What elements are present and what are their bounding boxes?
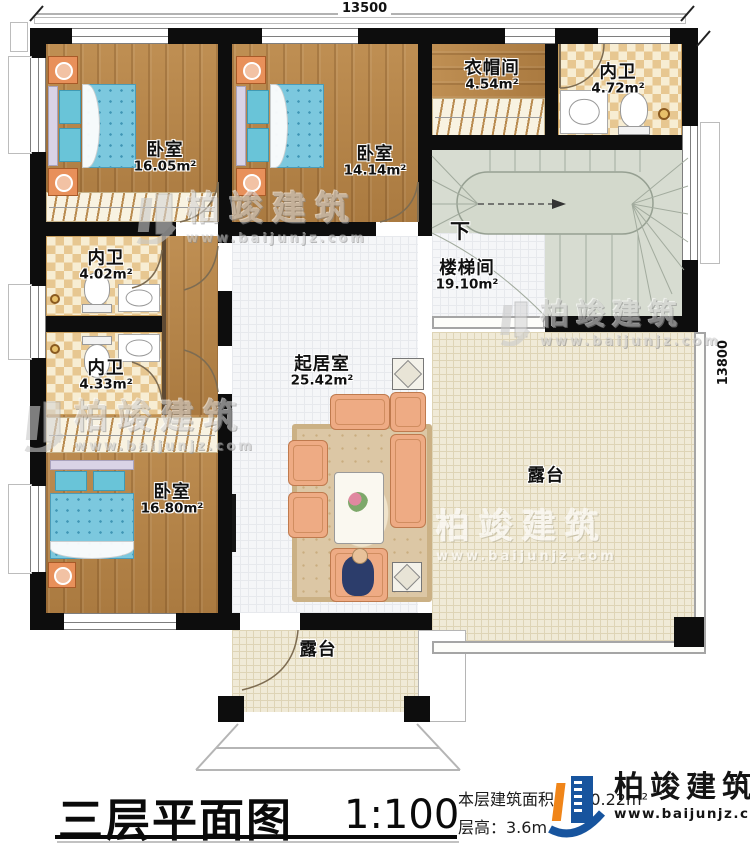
flower-decor [348, 492, 368, 512]
bed-pillow [247, 90, 269, 124]
cloakroom-wardrobe [432, 98, 545, 136]
room-label-bath-left-upper: 内卫 4.02m² [79, 249, 132, 282]
sofa-corner [390, 392, 426, 432]
window [505, 28, 555, 44]
room-area: 4.54m² [464, 78, 520, 93]
drawing-scale: 1:100 [344, 792, 459, 838]
toilet [620, 92, 648, 128]
window [30, 286, 46, 358]
room-label-bath-top-right: 内卫 4.72m² [591, 63, 644, 96]
floor-height-note: 层高：3.6m [458, 814, 547, 838]
wall-bath-corridor [162, 236, 166, 415]
room-name: 内卫 [79, 359, 132, 377]
room-label-living-room: 起居室 25.42m² [291, 355, 354, 388]
wall-stair-bottom [545, 316, 688, 332]
person-head [352, 548, 368, 564]
dimension-top: 13500 [338, 1, 391, 16]
window-sill [700, 122, 720, 264]
corner-post [674, 617, 704, 647]
door-opening [218, 346, 232, 394]
room-name: 楼梯间 [436, 259, 499, 277]
room-name: 露台 [528, 467, 565, 485]
bedroom1-wardrobe [46, 192, 218, 222]
room-area: 4.33m² [79, 378, 132, 393]
room-name: 内卫 [79, 249, 132, 267]
wall-cloak-bottom [432, 135, 688, 150]
nightstand [236, 56, 266, 84]
armchair [288, 440, 328, 486]
door-opening [218, 243, 232, 291]
room-label-bedroom-top-mid: 卧室 14.14m² [344, 145, 407, 178]
room-name: 卧室 [141, 483, 204, 501]
side-table [392, 562, 422, 592]
room-area: 25.42m² [291, 374, 354, 389]
room-label-bath-left-lower: 内卫 4.33m² [79, 359, 132, 392]
wall-right-upper [682, 28, 698, 128]
wall-living-bottom [300, 613, 432, 630]
room-area: 19.10m² [436, 278, 499, 293]
bed-pillow [55, 471, 87, 491]
room-name: 内卫 [591, 63, 644, 81]
window [30, 58, 46, 152]
brand-logo: 柏竣建筑 www.baijunjz.com [546, 771, 750, 839]
title-underline-shadow [57, 841, 459, 843]
window [64, 613, 176, 630]
wall-bedrooms-bottom [30, 222, 432, 236]
floor-terrace-right [432, 332, 694, 643]
bed-headboard [48, 86, 58, 166]
floor-drain [658, 108, 670, 120]
bed-headboard [50, 460, 134, 470]
side-table [392, 358, 424, 390]
wall-bath-divider [46, 316, 162, 332]
corner-post [404, 696, 430, 722]
terrace-parapet-bottom [432, 641, 706, 654]
armchair [288, 492, 328, 538]
towel-ring [50, 344, 60, 354]
stair-railing [432, 316, 545, 329]
room-name: 卧室 [344, 145, 407, 163]
brand-logo-icon [546, 771, 608, 839]
sofa [330, 394, 390, 430]
door-opening [176, 222, 218, 236]
wall-bed1-bed2 [218, 28, 232, 630]
room-name: 卧室 [134, 141, 197, 159]
window [262, 28, 358, 44]
toilet-tank [618, 126, 650, 135]
towel-ring [50, 294, 60, 304]
floor-corridor [166, 236, 218, 415]
room-label-terrace-bottom: 露台 [300, 641, 337, 659]
room-name: 露台 [300, 641, 337, 659]
brand-name: 柏竣建筑 [614, 771, 750, 806]
room-label-bedroom-bottom-left: 卧室 16.80m² [141, 483, 204, 516]
room-area: 16.05m² [134, 160, 197, 175]
window-sill [8, 484, 32, 574]
window [598, 28, 670, 44]
room-name: 起居室 [291, 355, 354, 373]
title-underline [55, 835, 457, 839]
window [30, 486, 46, 572]
window [682, 126, 698, 260]
eave-line [34, 17, 686, 24]
room-label-cloakroom: 衣帽间 4.54m² [464, 59, 520, 92]
nightstand [236, 168, 266, 196]
bed-pillow [59, 128, 81, 162]
room-area: 14.14m² [344, 164, 407, 179]
nightstand [48, 168, 78, 196]
terrace-parapet-right [694, 332, 706, 650]
brand-website: www.baijunjz.com [614, 806, 750, 822]
room-area: 4.72m² [591, 82, 644, 97]
floor-plan-page: 13500 13800 卧室 16.05m² 卧室 14.14m² 衣帽间 4.… [0, 0, 750, 843]
nightstand [48, 56, 78, 84]
room-label-terrace-right: 露台 [528, 467, 565, 485]
sink [118, 284, 160, 312]
room-area: 16.80m² [141, 502, 204, 517]
room-label-stairwell: 楼梯间 19.10m² [436, 259, 499, 292]
bed-pillow [247, 128, 269, 162]
wall-cloak-bath [545, 42, 558, 136]
corner-pier [10, 22, 28, 52]
room-area: 4.02m² [79, 268, 132, 283]
wall-bed2-stair [418, 28, 432, 233]
window-sill [8, 284, 32, 360]
nightstand [48, 562, 76, 588]
window [72, 28, 168, 44]
bed-pillow [93, 471, 125, 491]
bedroom3-wardrobe [46, 417, 218, 453]
bed-pillow [59, 90, 81, 124]
dimension-right: 13800 [712, 340, 735, 385]
room-name: 衣帽间 [464, 59, 520, 77]
toilet-tank [82, 304, 112, 313]
door-opening [240, 613, 300, 630]
door-opening [376, 222, 418, 236]
stair-direction-label: 下 [450, 215, 470, 244]
bed-headboard [236, 86, 246, 166]
room-label-bedroom-top-left: 卧室 16.05m² [134, 141, 197, 174]
sofa [390, 434, 426, 528]
window-sill [8, 56, 32, 154]
corner-post [218, 696, 244, 722]
